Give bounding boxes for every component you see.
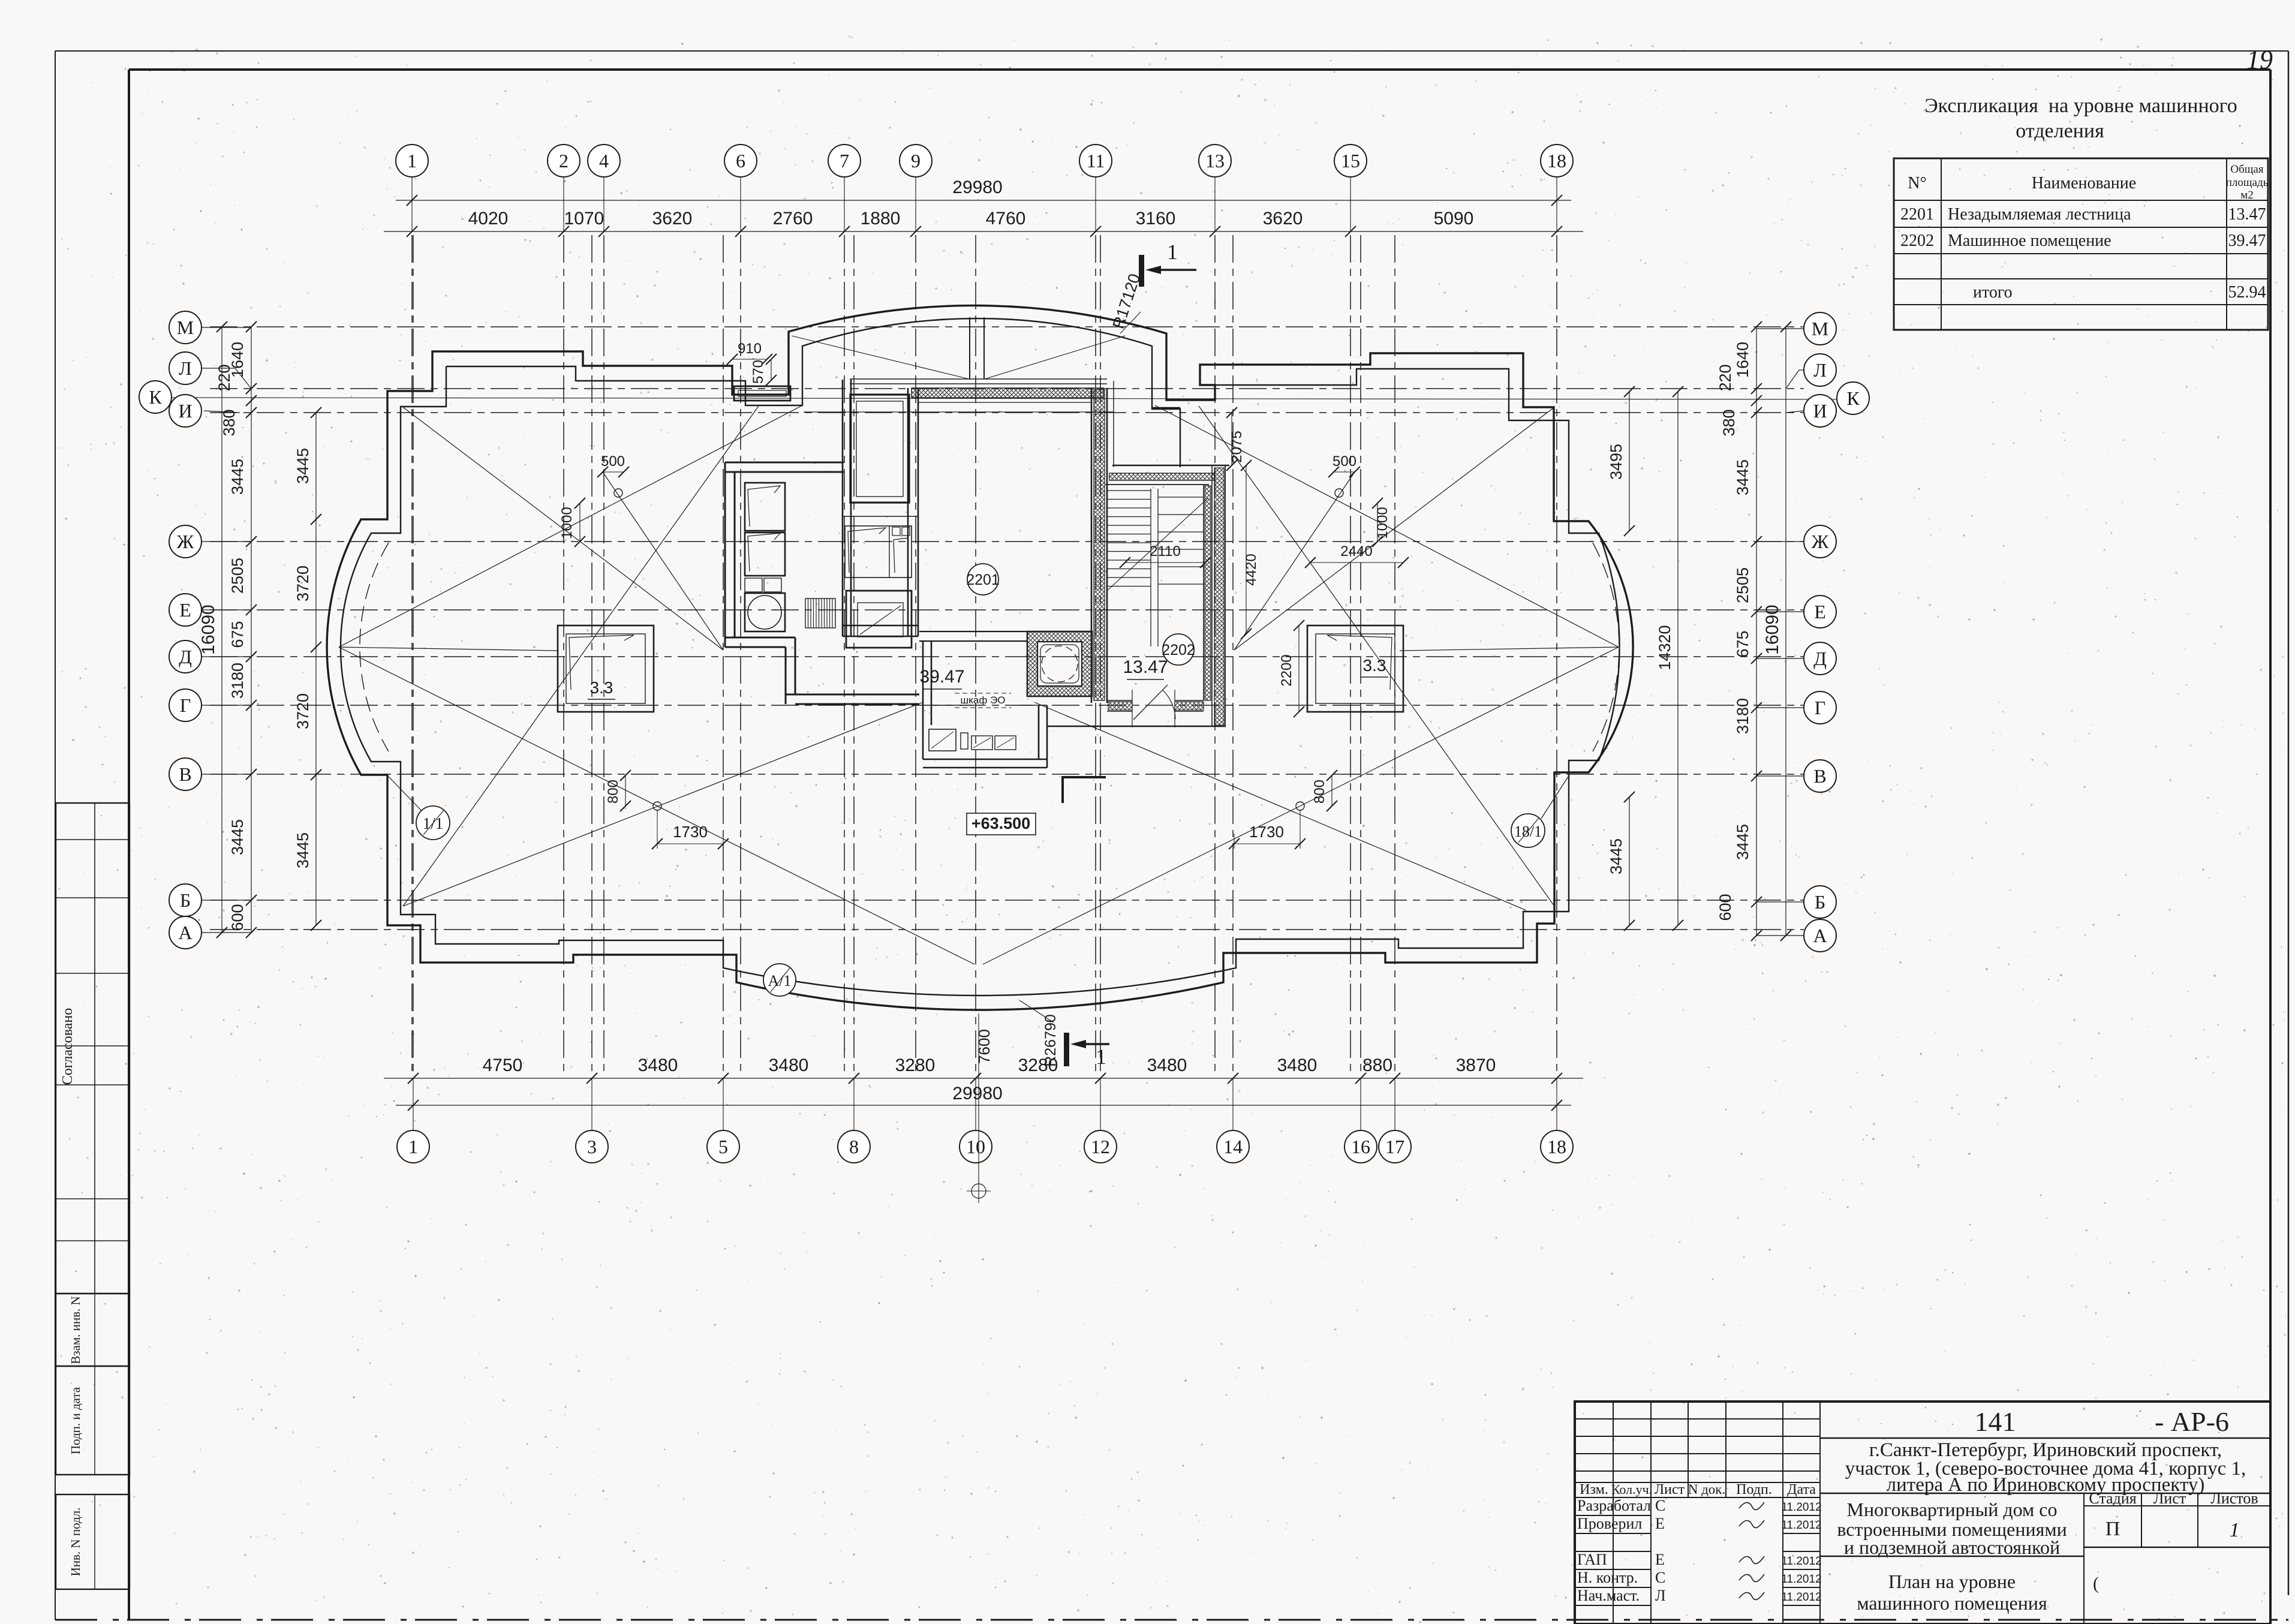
svg-text:2075: 2075 (1229, 431, 1245, 462)
svg-text:Д: Д (1813, 648, 1827, 669)
svg-text:Изм.: Изм. (1580, 1482, 1608, 1497)
svg-text:1730: 1730 (673, 823, 708, 841)
svg-text:Л: Л (1813, 359, 1827, 381)
svg-text:3445: 3445 (228, 459, 246, 495)
svg-text:машинного помещения: машинного помещения (1857, 1592, 2047, 1614)
svg-text:(: ( (2093, 1574, 2099, 1593)
svg-text:14: 14 (1223, 1136, 1243, 1157)
svg-text:11.2012: 11.2012 (1781, 1573, 1821, 1586)
svg-text:880: 880 (1362, 1055, 1392, 1075)
svg-text:6: 6 (736, 150, 745, 172)
svg-text:Ж: Ж (1812, 531, 1829, 552)
svg-text:3495: 3495 (1607, 444, 1625, 480)
svg-text:1: 1 (407, 150, 417, 172)
svg-text:4420: 4420 (1243, 554, 1259, 585)
svg-text:9: 9 (911, 150, 921, 172)
svg-text:2505: 2505 (228, 558, 246, 594)
svg-text:Согласовано: Согласовано (60, 1008, 76, 1085)
svg-text:Е: Е (1814, 601, 1826, 622)
svg-text:N°: N° (1908, 174, 1926, 193)
svg-text:14320: 14320 (1656, 625, 1674, 670)
svg-text:8: 8 (849, 1136, 859, 1157)
svg-text:Кол.уч.: Кол.уч. (1611, 1482, 1652, 1497)
svg-text:Б: Б (1815, 891, 1825, 913)
svg-text:3445: 3445 (228, 819, 246, 855)
svg-text:3180: 3180 (1734, 698, 1752, 734)
svg-text:17: 17 (1385, 1136, 1404, 1157)
svg-text:3480: 3480 (1147, 1055, 1187, 1075)
svg-text:2202: 2202 (1162, 642, 1195, 658)
svg-text:Л: Л (179, 357, 192, 379)
svg-text:1000: 1000 (559, 507, 575, 539)
svg-text:1640: 1640 (1734, 342, 1752, 378)
svg-text:3.3: 3.3 (590, 678, 613, 697)
svg-text:3480: 3480 (1277, 1055, 1318, 1075)
svg-text:Незадымляемая лестница: Незадымляемая лестница (1948, 205, 2131, 224)
svg-text:500: 500 (601, 453, 625, 470)
svg-text:Дата: Дата (1787, 1482, 1816, 1497)
svg-text:5: 5 (718, 1136, 728, 1157)
svg-text:13.47: 13.47 (2228, 205, 2266, 224)
svg-text:Наименование: Наименование (2032, 174, 2136, 193)
svg-text:2: 2 (559, 150, 569, 172)
svg-text:3160: 3160 (1136, 209, 1176, 228)
svg-text:1880: 1880 (861, 209, 901, 228)
svg-text:- АР-6: - АР-6 (2155, 1406, 2229, 1437)
svg-text:220: 220 (215, 364, 233, 391)
svg-text:Многоквартирный дом со: Многоквартирный дом со (1847, 1499, 2058, 1520)
svg-text:отделения: отделения (2016, 120, 2104, 142)
svg-text:К: К (1846, 387, 1860, 409)
svg-text:500: 500 (1333, 453, 1356, 470)
svg-text:Е: Е (179, 599, 191, 621)
svg-text:1: 1 (2230, 1519, 2240, 1541)
svg-text:1070: 1070 (564, 209, 604, 228)
svg-text:Проверил: Проверил (1577, 1515, 1642, 1532)
svg-text:С: С (1655, 1569, 1665, 1586)
svg-text:3720: 3720 (294, 693, 312, 729)
svg-text:4750: 4750 (483, 1055, 523, 1075)
svg-text:2200: 2200 (1279, 654, 1295, 686)
svg-text:3480: 3480 (769, 1055, 809, 1075)
svg-text:3445: 3445 (1734, 459, 1752, 495)
svg-text:Подп.: Подп. (1736, 1482, 1772, 1497)
svg-text:2202: 2202 (1900, 231, 1934, 250)
svg-text:Разработал: Разработал (1577, 1497, 1651, 1514)
svg-text:3180: 3180 (228, 663, 246, 699)
svg-text:Лист: Лист (2153, 1490, 2186, 1507)
svg-text:Экспликация на уровне машинно: Экспликация на уровне машинного (1924, 95, 2237, 117)
svg-text:М: М (177, 317, 194, 338)
svg-text:площадь: площадь (2226, 176, 2269, 189)
svg-text:3280: 3280 (895, 1055, 936, 1075)
svg-text:4: 4 (599, 150, 609, 172)
svg-text:А: А (1813, 925, 1827, 946)
svg-text:и подземной автостоянкой: и подземной автостоянкой (1844, 1536, 2060, 1558)
svg-text:План на уровне: План на уровне (1888, 1571, 2016, 1592)
svg-text:П: П (2105, 1518, 2120, 1540)
svg-text:В: В (179, 763, 191, 785)
svg-text:2505: 2505 (1734, 567, 1752, 603)
svg-text:11.2012: 11.2012 (1781, 1501, 1821, 1514)
svg-text:3620: 3620 (652, 209, 693, 228)
svg-text:м2: м2 (2240, 189, 2254, 202)
svg-text:2201: 2201 (1900, 205, 1934, 224)
svg-text:ГАП: ГАП (1577, 1551, 1607, 1568)
svg-text:18: 18 (1547, 150, 1566, 172)
svg-text:19: 19 (2246, 45, 2273, 74)
svg-text:2201: 2201 (966, 572, 1000, 588)
svg-text:3620: 3620 (1263, 209, 1303, 228)
svg-text:13.47: 13.47 (1123, 657, 1168, 677)
svg-text:380: 380 (1720, 409, 1738, 436)
svg-text:29980: 29980 (952, 1084, 1002, 1103)
svg-text:шкаф ЭО: шкаф ЭО (960, 694, 1005, 706)
svg-text:3870: 3870 (1456, 1055, 1496, 1075)
svg-text:7600: 7600 (975, 1029, 993, 1064)
svg-text:4760: 4760 (986, 209, 1026, 228)
svg-text:В: В (1813, 765, 1826, 787)
svg-text:4020: 4020 (468, 209, 509, 228)
svg-text:675: 675 (1734, 630, 1752, 657)
svg-text:16090: 16090 (1762, 605, 1782, 654)
svg-text:800: 800 (605, 780, 621, 804)
svg-text:3: 3 (587, 1136, 597, 1157)
svg-text:11.2012: 11.2012 (1781, 1555, 1821, 1568)
svg-text:18: 18 (1547, 1136, 1566, 1157)
svg-text:Ж: Ж (177, 531, 194, 552)
svg-text:А: А (178, 922, 192, 943)
svg-text:220: 220 (1716, 364, 1734, 391)
svg-text:М: М (1812, 318, 1828, 339)
svg-text:Взам. инв. N: Взам. инв. N (68, 1296, 83, 1364)
svg-text:Г: Г (180, 694, 191, 716)
svg-text:7: 7 (840, 150, 849, 172)
svg-text:2110: 2110 (1150, 543, 1181, 560)
svg-text:Д: Д (179, 646, 192, 667)
svg-text:13: 13 (1205, 150, 1225, 172)
svg-text:2760: 2760 (773, 209, 813, 228)
svg-text:29980: 29980 (952, 178, 1002, 197)
svg-text:10: 10 (966, 1136, 985, 1157)
svg-text:600: 600 (1716, 894, 1734, 921)
svg-text:Л: Л (1655, 1587, 1666, 1604)
svg-text:1730: 1730 (1249, 823, 1284, 841)
svg-text:Стадия: Стадия (2089, 1490, 2136, 1507)
svg-text:И: И (1813, 400, 1827, 422)
svg-text:380: 380 (220, 409, 238, 436)
svg-text:11.2012: 11.2012 (1781, 1591, 1821, 1604)
svg-text:3445: 3445 (294, 448, 312, 484)
svg-text:3445: 3445 (1607, 838, 1625, 874)
svg-text:910: 910 (738, 341, 762, 357)
svg-text:3.3: 3.3 (1363, 656, 1386, 675)
svg-text:1: 1 (1096, 1045, 1106, 1069)
svg-text:5090: 5090 (1434, 209, 1474, 228)
svg-text:Нач.маст.: Нач.маст. (1577, 1587, 1640, 1604)
svg-text:N док.: N док. (1688, 1482, 1726, 1497)
svg-text:Н. контр.: Н. контр. (1577, 1569, 1638, 1586)
svg-text:Машинное помещение: Машинное помещение (1948, 231, 2111, 250)
svg-text:3445: 3445 (1734, 824, 1752, 860)
svg-text:11.2012: 11.2012 (1781, 1519, 1821, 1532)
svg-text:16: 16 (1351, 1136, 1370, 1157)
svg-text:Инв. N подл.: Инв. N подл. (68, 1508, 83, 1577)
svg-text:+63.500: +63.500 (971, 814, 1030, 832)
svg-text:Общая: Общая (2230, 163, 2263, 176)
svg-text:2440: 2440 (1340, 543, 1372, 560)
svg-text:R26790: R26790 (1042, 1014, 1059, 1067)
svg-text:Е: Е (1655, 1515, 1665, 1532)
svg-text:1000: 1000 (1374, 507, 1391, 539)
svg-text:С: С (1655, 1497, 1665, 1514)
svg-text:Листов: Листов (2210, 1490, 2258, 1507)
svg-text:800: 800 (1312, 780, 1328, 804)
svg-text:675: 675 (228, 621, 246, 648)
svg-text:52.94: 52.94 (2228, 283, 2266, 302)
svg-text:3480: 3480 (638, 1055, 678, 1075)
svg-text:11: 11 (1087, 150, 1105, 172)
svg-text:К: К (149, 386, 162, 408)
svg-text:И: И (178, 400, 192, 422)
svg-text:итого: итого (1973, 283, 2013, 302)
svg-text:1: 1 (1167, 240, 1178, 264)
svg-text:600: 600 (228, 904, 246, 931)
svg-text:3445: 3445 (294, 832, 312, 868)
svg-text:Лист: Лист (1655, 1482, 1685, 1497)
svg-text:16090: 16090 (198, 605, 218, 654)
svg-text:Е: Е (1655, 1551, 1665, 1568)
svg-text:39.47: 39.47 (2228, 231, 2266, 250)
svg-text:1: 1 (408, 1136, 418, 1157)
svg-text:15: 15 (1341, 150, 1360, 172)
svg-text:3720: 3720 (294, 566, 312, 602)
svg-text:Г: Г (1815, 697, 1826, 718)
svg-text:39.47: 39.47 (919, 667, 964, 687)
svg-text:Подп. и дата: Подп. и дата (68, 1387, 83, 1454)
svg-text:570: 570 (750, 360, 766, 384)
svg-text:141: 141 (1975, 1406, 2016, 1437)
svg-text:Б: Б (180, 889, 191, 911)
svg-text:12: 12 (1091, 1136, 1110, 1157)
